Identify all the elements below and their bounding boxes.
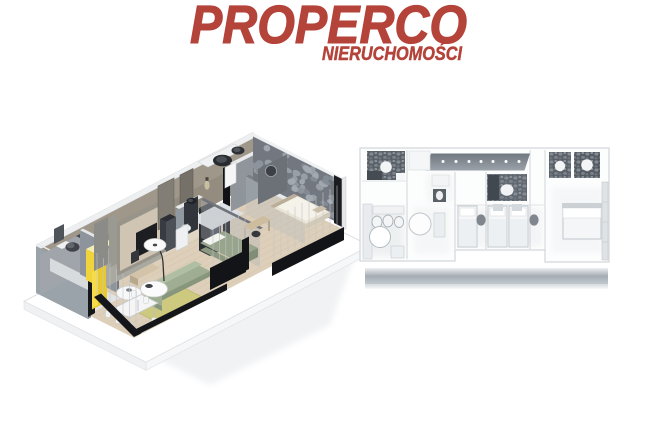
svg-text:NIERUCHOMOŚCI: NIERUCHOMOŚCI [322, 43, 463, 65]
